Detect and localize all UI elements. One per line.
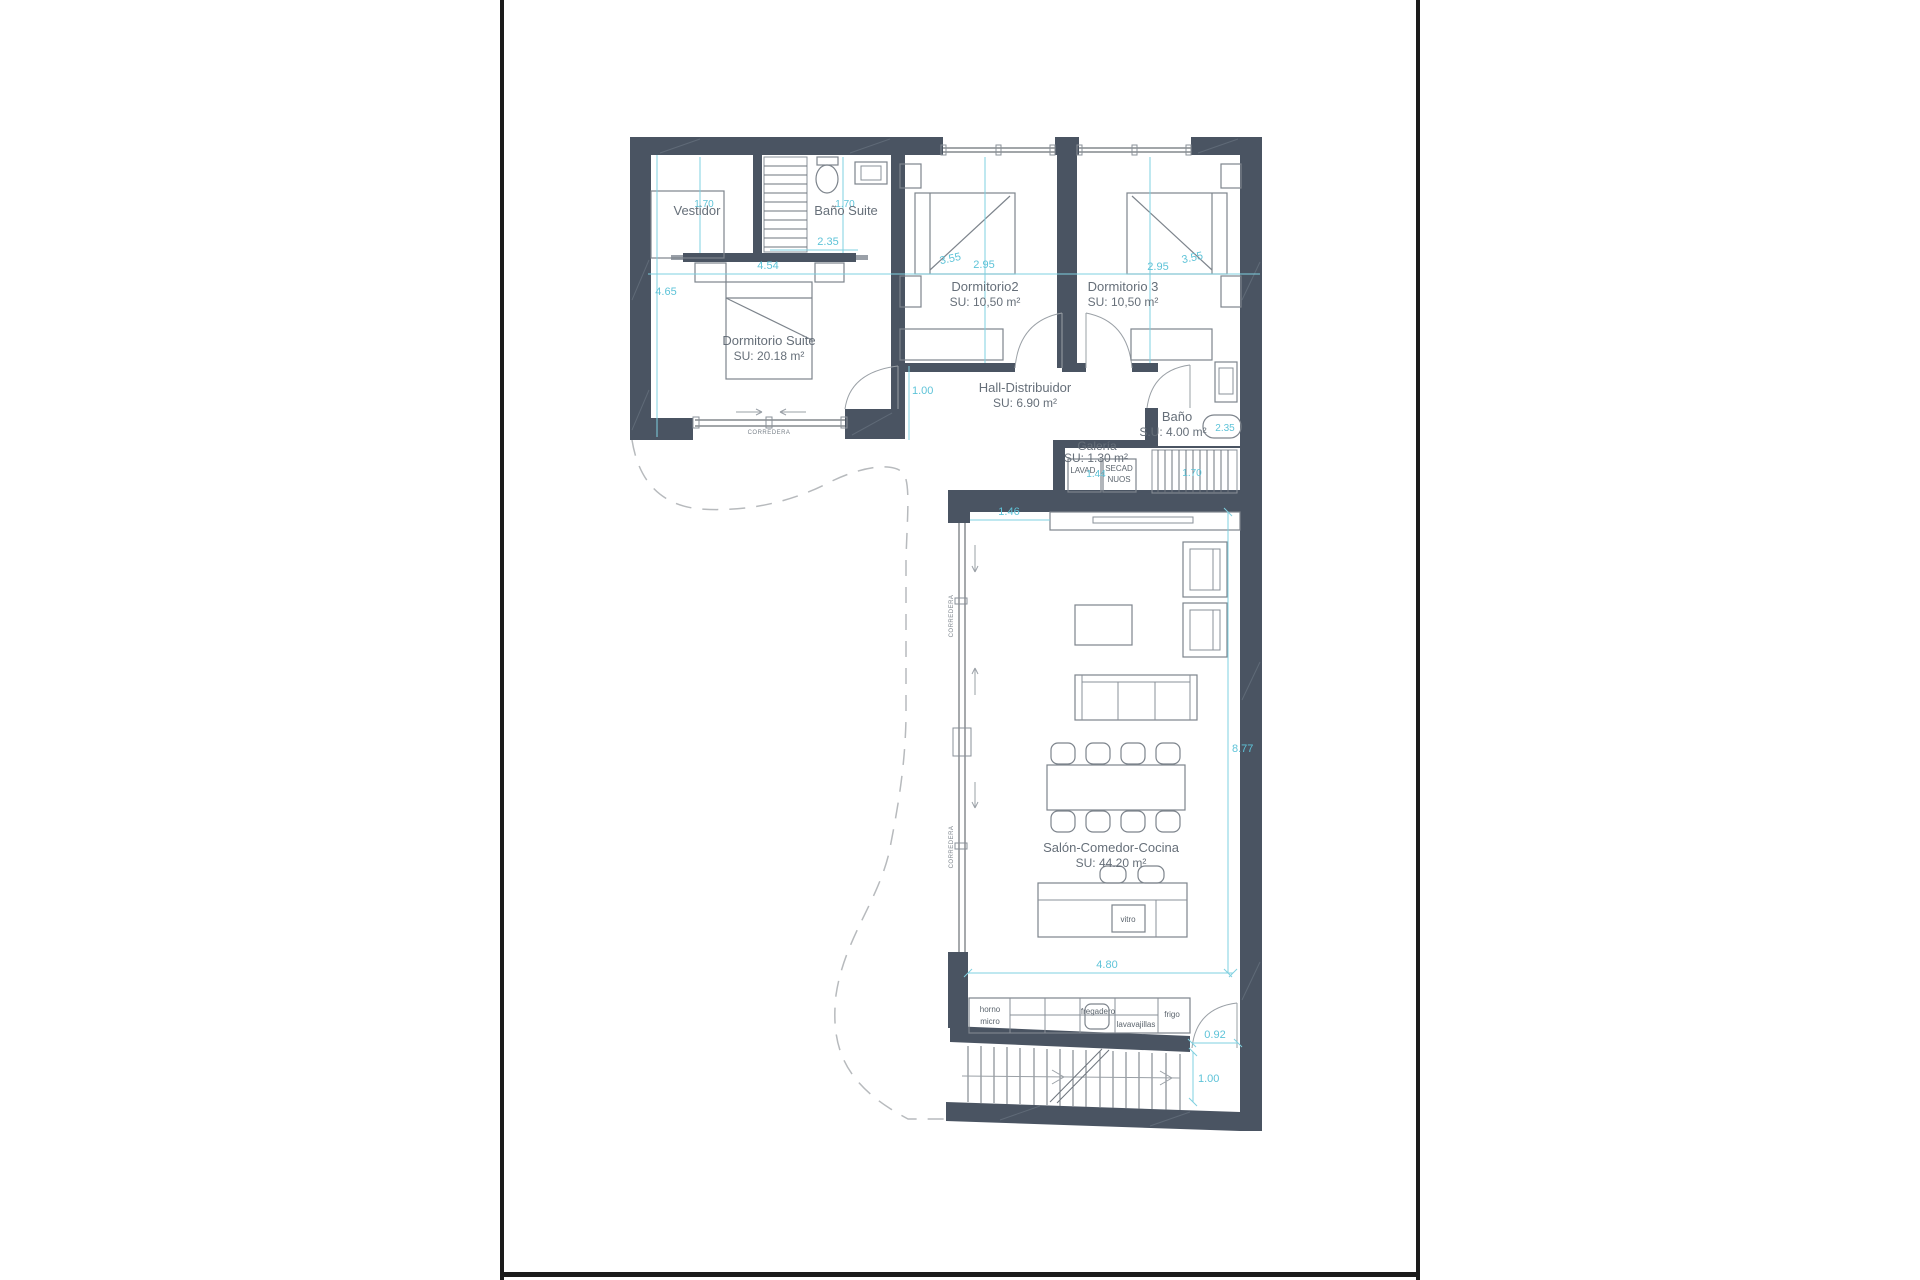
glass-wall-bottom-anchor xyxy=(948,952,968,1028)
room-area-galeria: SU: 1.30 m² xyxy=(1064,451,1128,465)
coffee-table xyxy=(1075,605,1132,645)
glass-wall-top-anchor xyxy=(948,490,970,523)
dim-dorm3-width: 2.95 xyxy=(1147,261,1168,273)
dim-suite-height: 4.65 xyxy=(655,286,676,298)
armchair-1 xyxy=(1183,542,1227,597)
window-dorm2 xyxy=(941,137,1055,155)
room-labels: Vestidor Baño Suite Dormitorio Suite SU:… xyxy=(674,203,1207,870)
door-kitchen-terrace xyxy=(1192,1003,1237,1048)
bano-suite-sink xyxy=(855,162,887,184)
dim-mid-stairs-width: 1.70 xyxy=(1182,468,1202,479)
room-label-salon: Salón-Comedor-Cocina xyxy=(1043,840,1180,855)
oven-label-line1: horno xyxy=(980,1005,1001,1014)
room-label-hall: Hall-Distribuidor xyxy=(979,380,1072,395)
corredera-suite: CORREDERA xyxy=(693,409,847,436)
slide-arrows xyxy=(736,409,806,415)
plot-boundary-dashed-line xyxy=(632,440,946,1119)
wall-dorm2-bottom xyxy=(898,363,1015,372)
room-area-dormitorio3: SU: 10,50 m² xyxy=(1088,295,1159,309)
wall-wing-bottom-left xyxy=(630,418,693,440)
room-area-dormitorio-suite: SU: 20.18 m² xyxy=(734,349,805,363)
fridge-label: frigo xyxy=(1164,1010,1180,1019)
corredera-salon-label-2: CORREDERA xyxy=(949,826,955,869)
sliding-doors: CORREDERA CORREDERA CORREDERA xyxy=(693,409,978,952)
wall-wing-top xyxy=(630,137,943,155)
stairs-suite xyxy=(764,157,807,252)
dim-kitchen-door: 0.92 xyxy=(1204,1029,1225,1041)
wall-between-dorm2-dorm3 xyxy=(1057,155,1077,368)
page-border-right xyxy=(1416,0,1420,1280)
slide-arrows-vertical xyxy=(972,545,978,808)
armchair-2 xyxy=(1183,603,1227,657)
corredera-salon: CORREDERA CORREDERA xyxy=(949,523,978,952)
floor-plan-drawing: CORREDERA CORREDERA CORREDERA xyxy=(0,0,1920,1280)
page-border-bottom xyxy=(500,1272,1420,1277)
dining-set xyxy=(1047,743,1185,832)
room-area-dormitorio2: SU: 10,50 m² xyxy=(950,295,1021,309)
wall-window-pier xyxy=(1055,137,1079,155)
room-area-bano: S.U: 4.00 m² xyxy=(1139,425,1206,439)
page-border-left xyxy=(500,0,504,1280)
wall-dorm3-bottom xyxy=(1132,363,1158,372)
dim-galeria-width: 1.44 xyxy=(1086,469,1106,480)
dryer-label-line2: NUOS xyxy=(1107,475,1130,484)
floor-plan-page: CORREDERA CORREDERA CORREDERA xyxy=(0,0,1920,1280)
corredera-salon-label-1: CORREDERA xyxy=(949,595,955,638)
room-label-bano-suite: Baño Suite xyxy=(814,203,878,218)
stairs-main xyxy=(962,1046,1180,1110)
room-label-dormitorio3: Dormitorio 3 xyxy=(1088,279,1159,294)
sink-label: fregadero xyxy=(1081,1007,1116,1016)
sofa xyxy=(1075,675,1197,720)
dim-bano-suite-depth: 2.35 xyxy=(817,236,838,248)
door-suite xyxy=(845,366,898,409)
oven-label-line2: micro xyxy=(980,1017,1000,1026)
room-label-vestidor: Vestidor xyxy=(674,203,722,218)
bano-suite-toilet xyxy=(816,157,838,193)
dim-dorm2-width: 2.95 xyxy=(973,259,994,271)
dim-suite-width: 4.54 xyxy=(757,260,778,272)
vitro-label: vitro xyxy=(1120,915,1136,924)
wall-wing-left xyxy=(630,137,651,440)
kitchen-island: vitro xyxy=(1038,866,1187,937)
wall-plan-bottom xyxy=(946,1102,1240,1131)
room-label-bano: Baño xyxy=(1162,409,1192,424)
room-label-dormitorio2: Dormitorio2 xyxy=(951,279,1018,294)
wall-kitchen-bottom xyxy=(950,1026,1190,1052)
dryer-label-line1: SECAD xyxy=(1105,464,1133,473)
walls xyxy=(630,137,1262,1131)
dim-bano-width: 2.35 xyxy=(1215,423,1235,434)
tv-console xyxy=(1050,512,1240,530)
wall-between-doors xyxy=(1062,363,1086,372)
dim-salon-gap: 1.46 xyxy=(998,506,1019,518)
dimension-ticks xyxy=(964,508,1242,1106)
dim-stairs-run: 1.00 xyxy=(1198,1073,1219,1085)
dim-salon-depth: 8.77 xyxy=(1232,743,1253,755)
dim-dorm3-depth: 3.55 xyxy=(1181,250,1204,266)
dim-salon-width: 4.80 xyxy=(1096,959,1117,971)
window-dorm3 xyxy=(1077,137,1191,155)
door-dorm3 xyxy=(1086,313,1132,368)
kitchen-counter: horno micro fregadero lavavajillas frigo xyxy=(969,998,1190,1033)
dim-dorm2-depth: 3.55 xyxy=(939,251,962,267)
room-area-hall: SU: 6.90 m² xyxy=(993,396,1057,410)
corredera-suite-label: CORREDERA xyxy=(748,430,791,436)
door-dorm2 xyxy=(1015,313,1062,368)
wardrobe-rail-cap-right xyxy=(856,255,868,260)
wall-vestidor-stairs xyxy=(753,155,762,258)
dishwasher-label: lavavajillas xyxy=(1117,1020,1156,1029)
dim-hall-entry: 1.00 xyxy=(912,385,933,397)
room-area-salon: SU: 44.20 m² xyxy=(1076,856,1147,870)
room-label-dormitorio-suite: Dormitorio Suite xyxy=(722,333,815,348)
